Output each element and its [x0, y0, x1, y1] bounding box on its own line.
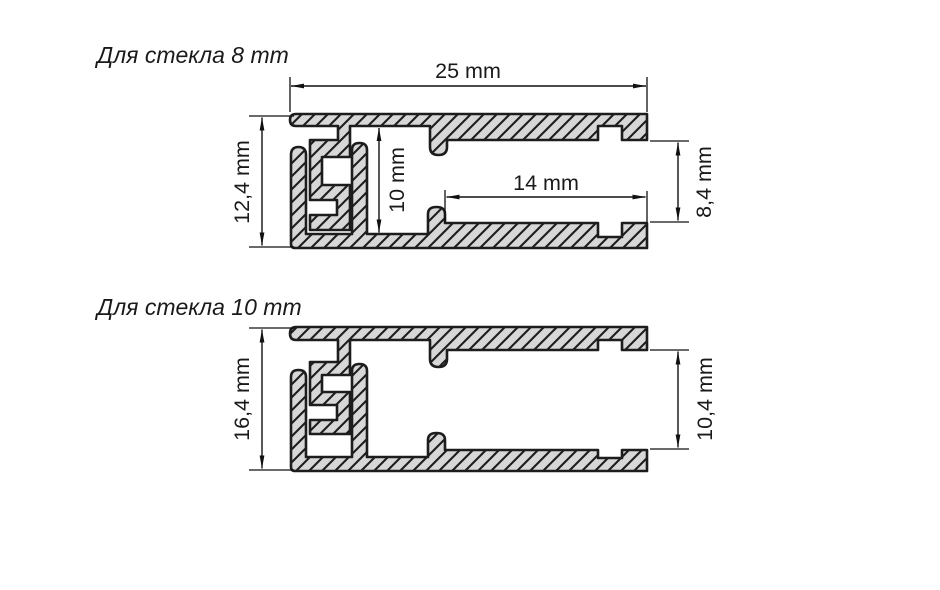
section-title-8mm: Для стекла 8 mm [94, 42, 289, 68]
dim-label-width-25mm: 25 mm [435, 59, 501, 83]
dim-label-pocket-14mm: 14 mm [513, 171, 579, 195]
dim-label-opening-8-4mm: 8,4 mm [692, 146, 716, 218]
section-title-10mm: Для стекла 10 mm [94, 294, 302, 320]
technical-drawing-page: 25 mm 12,4 mm 10 mm 14 mm 8,4 mm 16,4 mm… [0, 0, 940, 590]
dim-label-height-12-4mm: 12,4 mm [230, 140, 254, 224]
profiles-drawing: 25 mm 12,4 mm 10 mm 14 mm 8,4 mm 16,4 mm… [0, 0, 940, 590]
dim-label-opening-10-4mm: 10,4 mm [693, 357, 717, 441]
dim-label-inner-10mm: 10 mm [385, 147, 409, 213]
dim-label-height-16-4mm: 16,4 mm [230, 357, 254, 441]
